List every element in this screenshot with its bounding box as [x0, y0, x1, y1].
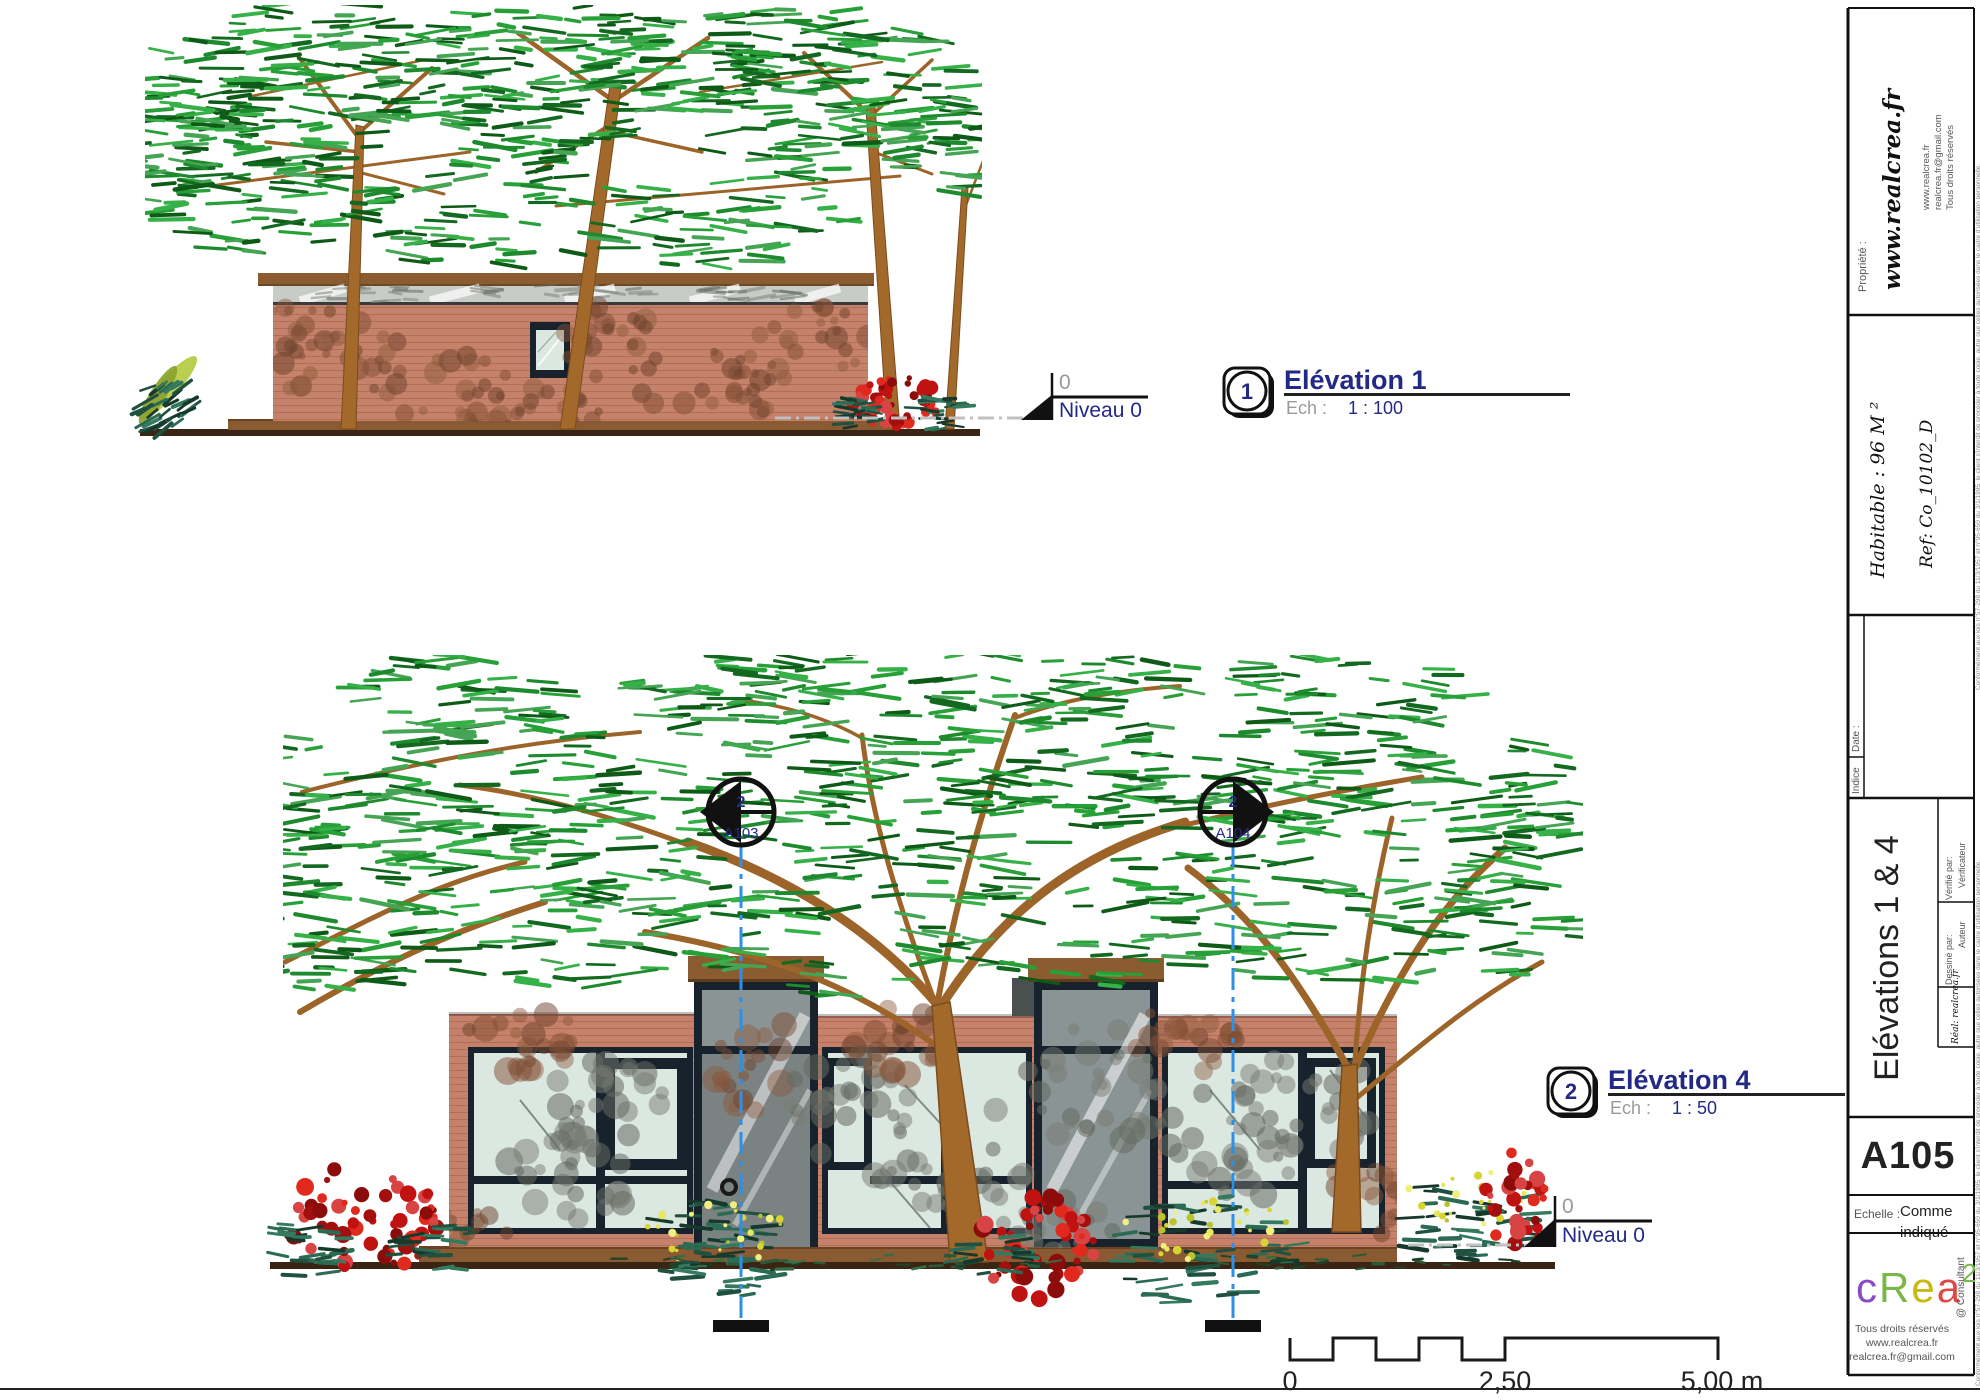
- index-label: Indice: [1851, 767, 1862, 794]
- scale-label: Echelle :: [1854, 1207, 1900, 1221]
- scale-bar-start: 0: [1282, 1366, 1297, 1396]
- view-title-text: Elévation 4: [1608, 1065, 1751, 1095]
- drawing-sheet: 0 Niveau 0 1 Elévation 1 Ech : 1 : 100: [0, 0, 1980, 1400]
- section-sheet-number: A104: [1215, 825, 1250, 842]
- view-number: 2: [1565, 1079, 1577, 1104]
- view-scale-label: Ech :: [1610, 1098, 1651, 1118]
- property-value: www.realcrea.fr: [1879, 87, 1906, 290]
- scale-value-line1: Comme: [1900, 1203, 1953, 1220]
- level-elevation-value: 0: [1562, 1195, 1574, 1218]
- habitable-area: Habitable : 96 M ²: [1867, 402, 1889, 579]
- level-name: Niveau 0: [1059, 399, 1142, 422]
- elev1-ground: [140, 429, 980, 436]
- section-detail-number: 2: [1229, 794, 1238, 811]
- checked-by-value: Vérificateur: [1957, 842, 1967, 888]
- scale-bar-end: 5,00 m: [1681, 1366, 1764, 1396]
- view-scale-label: Ech :: [1286, 398, 1327, 418]
- property-label: Propriété :: [1857, 241, 1869, 292]
- title-block: Propriété : www.realcrea.fr www.realcrea…: [1848, 8, 1980, 1386]
- view-title-text: Elévation 1: [1284, 365, 1427, 395]
- graphic-scale-bar: 0 2,50 5,00 m: [1282, 1338, 1763, 1396]
- level-name: Niveau 0: [1562, 1224, 1645, 1247]
- elev4-view-title[interactable]: 2 Elévation 4 Ech : 1 : 50: [1548, 1065, 1845, 1118]
- realized-by: Réal: realcrea.fr: [1950, 969, 1961, 1045]
- drawn-by-value: Auteur: [1957, 921, 1967, 948]
- section-sheet-number: A103: [723, 825, 758, 842]
- checked-by-label: Vérifié par:: [1944, 856, 1954, 900]
- legal-edge-text: Conformément aux lois n°57-298 du 11/3/1…: [1974, 860, 1980, 1386]
- section-detail-number: 2: [737, 794, 746, 811]
- tree-trunk: [945, 187, 968, 429]
- contact-line-2: realcrea.fr@gmail.com: [1933, 114, 1944, 210]
- footer-line-2: www.realcrea.fr: [1865, 1337, 1939, 1349]
- sheet-title: Elévations 1 & 4: [1868, 835, 1906, 1081]
- sheet-number: A105: [1861, 1135, 1956, 1177]
- consultant-label: @ Consultant: [1956, 1257, 1967, 1318]
- elev1-view-title[interactable]: 1 Elévation 1 Ech : 1 : 100: [1224, 365, 1570, 418]
- elev4-foliage: [216, 628, 1600, 997]
- contact-line-3: Tous droits réservés: [1945, 125, 1956, 210]
- legal-edge-text: Conformément aux lois n°57-298 du 11/3/1…: [1974, 164, 1980, 690]
- view-scale-value: 1 : 100: [1348, 398, 1403, 418]
- level-arrow-icon: [1021, 394, 1053, 420]
- elevation-4-drawing: 2 A103 2 A104 0 Niveau 0 2 Eléva: [216, 628, 1845, 1332]
- date-label: Date :: [1851, 725, 1862, 752]
- view-number: 1: [1241, 379, 1253, 404]
- level-elevation-value: 0: [1059, 371, 1071, 394]
- footer-line-3: realcrea.fr@gmail.com: [1849, 1351, 1955, 1363]
- footer-line-1: Tous droits réservés: [1855, 1323, 1949, 1335]
- contact-line-1: www.realcrea.fr: [1921, 145, 1932, 211]
- elevation-1-drawing: 0 Niveau 0 1 Elévation 1 Ech : 1 : 100: [113, 0, 1570, 438]
- view-scale-value: 1 : 50: [1672, 1098, 1717, 1118]
- reference-number: Ref: Co_10102_D: [1917, 419, 1937, 569]
- scale-bar-mid: 2,50: [1479, 1366, 1532, 1396]
